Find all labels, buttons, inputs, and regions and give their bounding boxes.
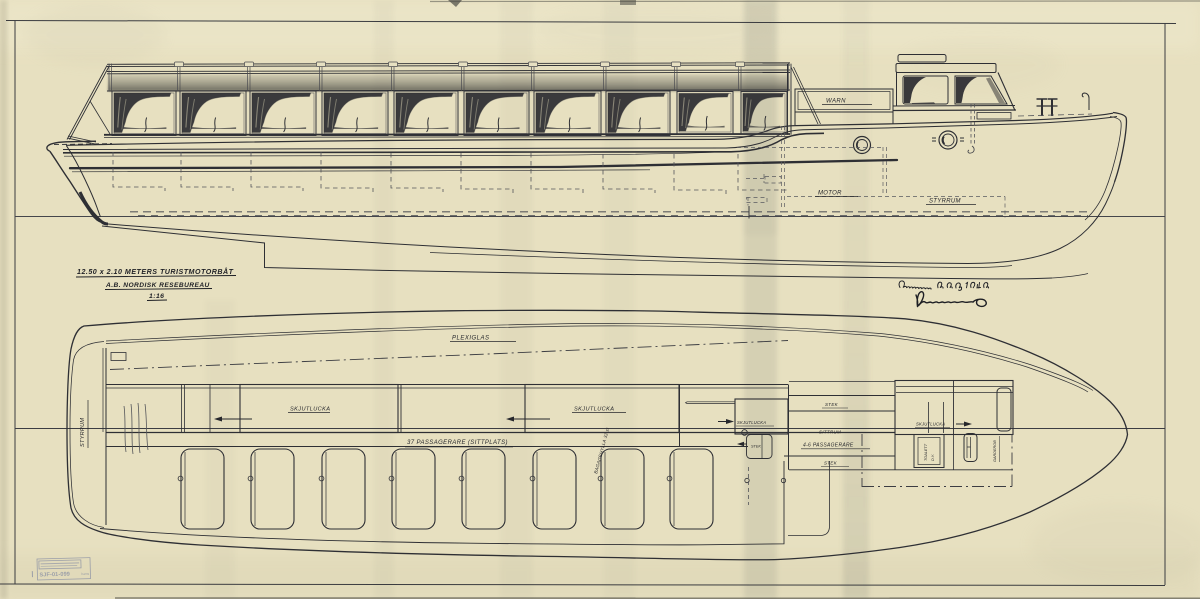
svg-text:37 PASSAGERARE (SITTPLATS): 37 PASSAGERARE (SITTPLATS)	[407, 440, 508, 446]
svg-text:MOTOR: MOTOR	[818, 191, 842, 197]
svg-text:STYRRUM: STYRRUM	[80, 418, 86, 447]
svg-text:GARDEROB: GARDEROB	[993, 440, 997, 462]
svg-text:TOALETT: TOALETT	[924, 443, 928, 461]
svg-text:SITTRUM: SITTRUM	[819, 430, 841, 435]
svg-text:SKJUTLUCKA: SKJUTLUCKA	[916, 422, 945, 427]
svg-text:STEK: STEK	[825, 402, 839, 407]
svg-text:SKJUTLUCKA: SKJUTLUCKA	[574, 407, 614, 413]
svg-text:SKJUTLUCKA: SKJUTLUCKA	[737, 420, 766, 425]
svg-text:PLEXIGLAS: PLEXIGLAS	[452, 336, 490, 342]
svg-text:STEK: STEK	[824, 461, 838, 466]
svg-text:1:16: 1:16	[149, 293, 164, 300]
svg-text:4-6 PASSAGERARE: 4-6 PASSAGERARE	[803, 443, 854, 449]
svg-text:SJF-01-099: SJF-01-099	[39, 572, 70, 579]
svg-text:SKJUTLUCKA: SKJUTLUCKA	[290, 407, 330, 413]
svg-text:STYRRUM: STYRRUM	[929, 199, 961, 205]
svg-text:WARN: WARN	[826, 99, 846, 105]
svg-text:12.50 x 2.10 METERS TURISTMOTO: 12.50 x 2.10 METERS TURISTMOTORBÅT	[77, 267, 234, 276]
svg-text:D.Y.: D.Y.	[931, 454, 935, 461]
svg-text:hams: hams	[81, 572, 89, 576]
svg-text:A.B. NORDISK RESEBUREAU: A.B. NORDISK RESEBUREAU	[105, 282, 210, 289]
svg-text:STEK: STEK	[751, 445, 761, 449]
